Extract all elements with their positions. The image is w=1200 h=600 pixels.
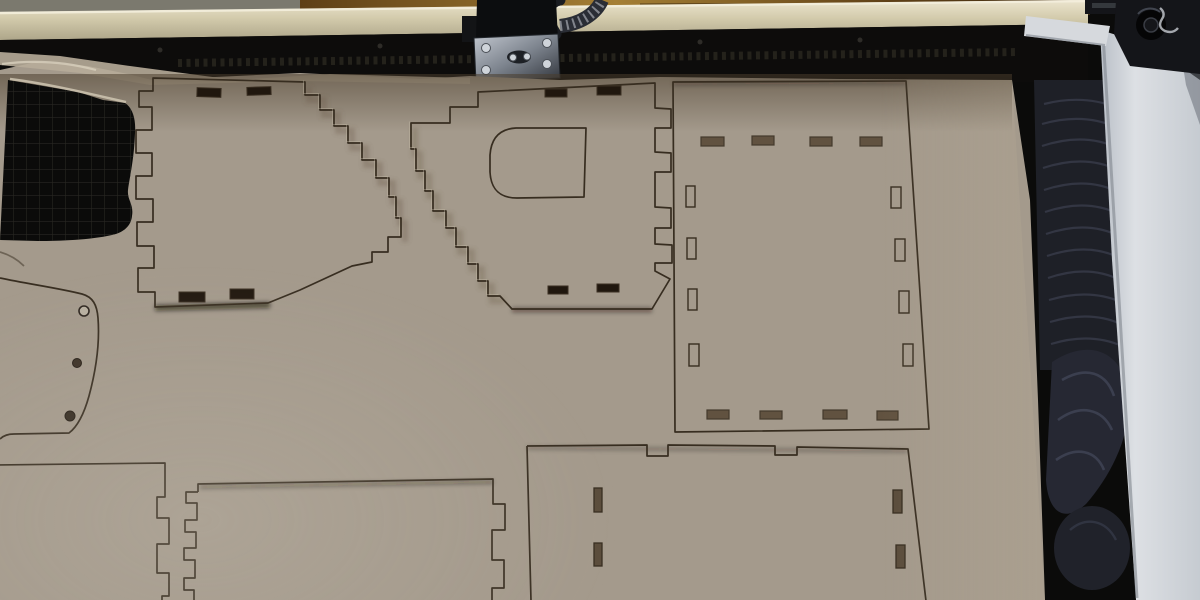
cutting-bed-grid-cutout [0, 79, 135, 241]
head-body [476, 0, 558, 40]
photo-canvas [0, 0, 1200, 600]
cardboard-sheet [0, 52, 1045, 600]
laser-cutter-photo [0, 0, 1200, 600]
